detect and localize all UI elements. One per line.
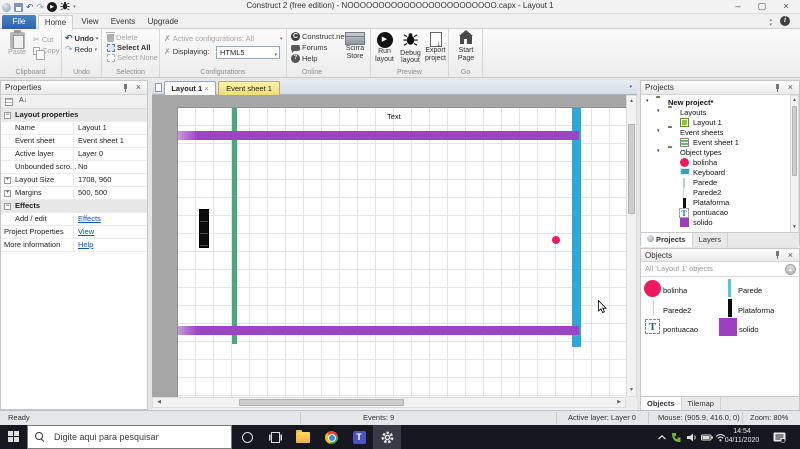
tree-item-event-sheets[interactable]: ▾Event sheets bbox=[641, 128, 799, 138]
volume-button[interactable] bbox=[685, 425, 698, 449]
divider bbox=[556, 412, 557, 424]
chevron-down-icon: ▾ bbox=[274, 50, 277, 61]
page-icon bbox=[155, 83, 162, 92]
group-label: Preview bbox=[371, 69, 448, 76]
property-row[interactable]: Event sheetEvent sheet 1 bbox=[1, 135, 147, 148]
clock-date: 04/11/2020 bbox=[718, 436, 766, 445]
sort-az-icon[interactable]: A↓ bbox=[19, 97, 27, 104]
scroll-thumb[interactable] bbox=[792, 106, 797, 176]
layout-editor: Layout 1 × Event sheet 1 ▾ Text ▲ ▼ ◀ bbox=[152, 80, 637, 410]
window-title: Construct 2 (free edition) - NOOOOOOOOOO… bbox=[0, 1, 800, 10]
phone-icon bbox=[671, 432, 682, 443]
expand-icon[interactable]: + bbox=[4, 177, 11, 184]
pin-icon[interactable] bbox=[122, 84, 129, 92]
property-row[interactable]: +Margins500, 500 bbox=[1, 187, 147, 200]
store-crate-icon bbox=[345, 32, 365, 45]
solid-icon bbox=[680, 218, 689, 227]
group-undo: ↶Undo▾ ↷Redo▾ Undo bbox=[62, 29, 102, 77]
cortana-button[interactable] bbox=[233, 425, 261, 449]
solido-thumbnail[interactable] bbox=[719, 318, 737, 336]
construct-icon: C bbox=[291, 32, 300, 41]
tree-item-solido[interactable]: solido bbox=[641, 218, 799, 228]
minimize-button[interactable]: – bbox=[726, 0, 750, 13]
trash-icon bbox=[107, 34, 114, 42]
bug-icon bbox=[403, 32, 418, 50]
tab-list-dropdown-icon[interactable]: ▾ bbox=[629, 84, 632, 90]
text-object[interactable]: Text bbox=[387, 112, 401, 121]
tree-item-parede2[interactable]: Parede2 bbox=[641, 188, 799, 198]
tree-item-keyboard[interactable]: Keyboard bbox=[641, 168, 799, 178]
undo-icon: ↶ bbox=[65, 34, 73, 43]
parede-thumbnail[interactable] bbox=[728, 279, 731, 297]
objects-filter-bar[interactable]: All 'Layout 1' objects ▲ bbox=[641, 262, 799, 277]
construct-net-link[interactable]: CConstruct.net bbox=[291, 32, 347, 41]
maximize-button[interactable]: ▢ bbox=[750, 0, 774, 13]
export-icon bbox=[430, 32, 442, 47]
battery-button[interactable] bbox=[700, 425, 714, 449]
tab-home[interactable]: Home bbox=[38, 15, 73, 30]
export-project-button[interactable]: Export project bbox=[423, 32, 448, 62]
parede-object[interactable] bbox=[232, 108, 237, 344]
scroll-up-icon[interactable]: ▲ bbox=[627, 97, 636, 106]
taskbar-search-input[interactable] bbox=[27, 425, 232, 449]
projects-header: Projects × bbox=[641, 81, 799, 95]
objects-grid: bolinha Parede Parede2 Plataforma T pont… bbox=[641, 277, 799, 397]
group-preview: ▶ Run layout Debug layout Export project… bbox=[371, 29, 449, 77]
wall-icon bbox=[683, 178, 685, 188]
tab-upgrade[interactable]: Upgrade bbox=[141, 15, 185, 29]
projects-tree: ▾New project* ▾Layouts Layout 1 ▾Event s… bbox=[641, 95, 799, 233]
pontuacao-thumbnail[interactable]: T bbox=[645, 319, 660, 334]
group-go: Start Page Go bbox=[449, 29, 483, 77]
displaying-combobox[interactable]: HTML5▾ bbox=[216, 46, 280, 59]
close-tab-icon[interactable]: × bbox=[204, 84, 208, 93]
cut-icon: ✂ bbox=[33, 36, 40, 44]
keyboard-icon bbox=[680, 168, 690, 175]
group-label: Configurations bbox=[160, 69, 286, 76]
group-clipboard: Paste ✂Cut Copy Clipboard bbox=[0, 29, 62, 77]
parede-object-right[interactable] bbox=[572, 108, 581, 347]
group-label: Undo bbox=[62, 69, 101, 76]
tree-item-event-sheet-1[interactable]: Event sheet 1 bbox=[641, 138, 799, 148]
search-icon bbox=[35, 432, 45, 442]
text-icon: T bbox=[679, 208, 689, 218]
group-configurations: ✗Active configurations: All ▾ ✗Displayin… bbox=[160, 29, 287, 77]
tab-event-sheet-1[interactable]: Event sheet 1 bbox=[218, 81, 280, 95]
horizontal-scrollbar[interactable]: ◀ ▶ bbox=[152, 397, 626, 408]
tree-item-bolinha[interactable]: bolinha bbox=[641, 158, 799, 168]
properties-toolbar: A↓ bbox=[1, 95, 147, 109]
property-row[interactable]: Unbounded scro...No bbox=[1, 161, 147, 174]
scroll-down-icon[interactable]: ▼ bbox=[791, 223, 798, 232]
filter-up-icon[interactable]: ▲ bbox=[785, 264, 796, 275]
tree-item-plataforma[interactable]: Plataforma bbox=[641, 198, 799, 208]
scrollbar-corner bbox=[626, 397, 637, 408]
copy-button[interactable]: Copy bbox=[33, 46, 60, 55]
expand-icon[interactable]: + bbox=[4, 190, 11, 197]
bolinha-object[interactable] bbox=[552, 236, 560, 244]
chrome-icon bbox=[325, 431, 338, 444]
plataforma-thumbnail[interactable] bbox=[728, 299, 732, 317]
ribbon-tab-bar: File Home View Events Upgrade ▴▾ i bbox=[0, 14, 800, 29]
tree-item-layout-1[interactable]: Layout 1 bbox=[641, 118, 799, 128]
help-link[interactable]: Help bbox=[73, 240, 145, 252]
active-configurations-dropdown[interactable]: ✗Active configurations: All bbox=[164, 34, 254, 43]
filter-text: All 'Layout 1' objects bbox=[645, 264, 713, 273]
tree-item-pontuacao[interactable]: Tpontuacao bbox=[641, 208, 799, 218]
panel-title: Objects bbox=[645, 251, 672, 260]
properties-panel: Properties × A↓ −Layout properties NameL… bbox=[0, 80, 148, 410]
layout-viewport[interactable]: Text bbox=[152, 95, 626, 397]
scroll-right-icon[interactable]: ▶ bbox=[615, 398, 623, 407]
group-label: Clipboard bbox=[0, 69, 61, 76]
group-label: Online bbox=[287, 69, 337, 76]
group-selection: Delete Select All Select None Selection bbox=[102, 29, 160, 77]
collapse-icon[interactable]: − bbox=[4, 112, 11, 119]
gear-icon bbox=[380, 430, 395, 445]
notification-icon bbox=[773, 432, 786, 443]
properties-grid: −Layout properties NameLayout 1 Event sh… bbox=[1, 109, 147, 409]
windows-logo-icon bbox=[8, 431, 20, 443]
close-icon[interactable]: × bbox=[788, 81, 793, 94]
task-view-icon bbox=[269, 432, 282, 443]
globe-icon bbox=[647, 235, 654, 242]
tree-item-new-project[interactable]: ▾New project* bbox=[641, 98, 799, 108]
vertical-scrollbar[interactable]: ▲ ▼ bbox=[626, 95, 637, 397]
paste-icon bbox=[10, 32, 25, 49]
redo-icon: ↷ bbox=[65, 45, 73, 54]
status-bar: Ready Events: 9 Active layer: Layer 0 Mo… bbox=[0, 410, 800, 425]
view-link[interactable]: View bbox=[73, 227, 145, 239]
mouse-cursor bbox=[598, 300, 607, 316]
categorized-view-icon[interactable] bbox=[5, 98, 13, 106]
scroll-left-icon[interactable]: ◀ bbox=[155, 398, 163, 407]
undo-button[interactable]: ↶Undo▾ bbox=[65, 34, 98, 43]
cortana-icon bbox=[242, 432, 253, 443]
property-row[interactable]: Add / editEffects bbox=[1, 213, 147, 226]
forums-icon bbox=[291, 45, 300, 51]
properties-header: Properties × bbox=[1, 81, 147, 95]
notifications-button[interactable] bbox=[770, 425, 788, 449]
scroll-down-icon[interactable]: ▼ bbox=[627, 386, 636, 395]
config-icon: ✗ bbox=[164, 35, 171, 43]
panel-title: Projects bbox=[645, 83, 674, 92]
divider bbox=[648, 412, 649, 424]
help-link[interactable]: ?Help bbox=[291, 54, 317, 63]
status-active-layer: Active layer: Layer 0 bbox=[568, 413, 636, 422]
ribbon-collapse-icon[interactable]: ▴▾ bbox=[769, 18, 772, 28]
clock[interactable]: 14:54 04/11/2020 bbox=[718, 427, 766, 445]
divider bbox=[742, 412, 743, 424]
scirra-store-button[interactable]: Scirra Store bbox=[340, 32, 370, 60]
clock-time: 14:54 bbox=[718, 427, 766, 436]
property-row[interactable]: NameLayout 1 bbox=[1, 122, 147, 135]
tab-file[interactable]: File bbox=[2, 15, 36, 29]
battery-icon bbox=[701, 434, 713, 441]
select-all-button[interactable]: Select All bbox=[107, 43, 151, 52]
collapse-icon[interactable]: − bbox=[4, 203, 11, 210]
layout-area[interactable]: Text bbox=[177, 107, 626, 397]
editor-tab-bar: Layout 1 × Event sheet 1 ▾ bbox=[152, 80, 637, 95]
status-zoom: Zoom: 80% bbox=[750, 413, 788, 422]
property-row[interactable]: Project PropertiesView bbox=[1, 226, 147, 239]
section-row[interactable]: −Layout properties bbox=[1, 109, 147, 122]
pin-icon[interactable] bbox=[774, 251, 781, 259]
wall2-icon bbox=[683, 188, 684, 198]
config-icon: ✗ bbox=[164, 48, 171, 56]
chevron-up-icon bbox=[658, 435, 666, 440]
delete-button[interactable]: Delete bbox=[107, 33, 138, 42]
objects-panel-tabs: Objects Tilemap bbox=[641, 396, 799, 410]
screen: ↶ ↷ ▶ ▾ Construct 2 (free edition) - NOO… bbox=[0, 0, 800, 449]
tree-item-parede[interactable]: Parede bbox=[641, 178, 799, 188]
event-sheet-icon bbox=[680, 138, 689, 147]
displaying-label: ✗Displaying: bbox=[164, 47, 209, 56]
tab-layers[interactable]: Layers bbox=[693, 233, 729, 247]
tree-item-object-types[interactable]: ▾Object types bbox=[641, 148, 799, 158]
group-label: Selection bbox=[102, 69, 159, 76]
speaker-icon bbox=[687, 433, 697, 442]
select-none-button[interactable]: Select None bbox=[107, 53, 158, 62]
settings-button[interactable] bbox=[373, 425, 401, 449]
property-row[interactable]: +Layout Size1708, 960 bbox=[1, 174, 147, 187]
pin-icon[interactable] bbox=[774, 84, 781, 92]
teams-button[interactable]: T bbox=[345, 425, 373, 449]
tree-item-layouts[interactable]: ▾Layouts bbox=[641, 108, 799, 118]
plataforma-object[interactable] bbox=[199, 209, 209, 248]
layout-icon bbox=[680, 118, 689, 127]
start-page-button[interactable]: Start Page bbox=[451, 29, 481, 62]
projects-panel-tabs: Projects Layers bbox=[641, 232, 799, 246]
ball-icon bbox=[680, 158, 689, 167]
tab-view[interactable]: View bbox=[75, 15, 105, 29]
property-row[interactable]: Active layerLayer 0 bbox=[1, 148, 147, 161]
tab-events[interactable]: Events bbox=[106, 15, 140, 29]
solido-object-top[interactable] bbox=[178, 131, 579, 140]
objects-header: Objects × bbox=[641, 249, 799, 262]
horizontal-scroll-thumb[interactable] bbox=[239, 399, 404, 406]
status-events: Events: 9 bbox=[363, 413, 394, 422]
run-layout-button[interactable]: ▶ Run layout bbox=[372, 32, 397, 63]
redo-button[interactable]: ↷Redo▾ bbox=[65, 45, 97, 54]
start-button[interactable] bbox=[0, 425, 27, 449]
status-mouse: Mouse: (905.9, 416.0, 0) bbox=[658, 413, 740, 422]
group-online: CConstruct.net Forums ?Help Scirra Store… bbox=[287, 29, 371, 77]
tray-green-app-button[interactable] bbox=[670, 425, 683, 449]
about-icon[interactable]: i bbox=[780, 16, 790, 26]
panel-title: Properties bbox=[5, 83, 41, 92]
title-bar: ↶ ↷ ▶ ▾ Construct 2 (free edition) - NOO… bbox=[0, 0, 800, 14]
group-label: Go bbox=[449, 69, 482, 76]
home-icon bbox=[460, 36, 472, 44]
task-view-button[interactable] bbox=[261, 425, 289, 449]
projects-scrollbar[interactable]: ▲ ▼ bbox=[790, 95, 799, 233]
close-icon[interactable]: × bbox=[788, 249, 793, 262]
objects-panel: Objects × All 'Layout 1' objects ▲ bolin… bbox=[640, 248, 800, 410]
forums-link[interactable]: Forums bbox=[291, 43, 327, 52]
close-button[interactable]: × bbox=[774, 0, 798, 13]
help-icon: ? bbox=[291, 54, 300, 63]
divider bbox=[300, 412, 301, 424]
folder-icon bbox=[296, 432, 310, 443]
paste-button[interactable]: Paste bbox=[4, 32, 30, 57]
play-icon: ▶ bbox=[377, 32, 393, 48]
tab-projects[interactable]: Projects bbox=[641, 233, 693, 247]
vertical-scroll-thumb[interactable] bbox=[628, 124, 635, 214]
tab-objects[interactable]: Objects bbox=[641, 397, 682, 411]
tab-tilemap[interactable]: Tilemap bbox=[682, 397, 721, 411]
taskbar: T 14:54 04/11/2020 bbox=[0, 425, 800, 449]
projects-panel: Projects × ▾New project* ▾Layouts Layout… bbox=[640, 80, 800, 246]
bolinha-thumbnail[interactable] bbox=[644, 280, 661, 297]
file-explorer-button[interactable] bbox=[289, 425, 317, 449]
solido-object-bottom[interactable] bbox=[178, 326, 579, 335]
window-controls: – ▢ × bbox=[726, 0, 798, 13]
scroll-up-icon[interactable]: ▲ bbox=[791, 96, 798, 105]
cut-button[interactable]: ✂Cut bbox=[33, 35, 53, 44]
status-ready: Ready bbox=[8, 413, 30, 422]
copy-icon bbox=[33, 47, 40, 55]
effects-link[interactable]: Effects bbox=[73, 214, 145, 226]
tab-layout-1[interactable]: Layout 1 × bbox=[164, 81, 216, 95]
chevron-down-icon[interactable]: ▾ bbox=[280, 36, 283, 42]
close-icon[interactable]: × bbox=[136, 81, 141, 94]
platform-icon bbox=[683, 198, 686, 208]
property-row[interactable]: More informationHelp bbox=[1, 239, 147, 252]
ribbon: Paste ✂Cut Copy Clipboard ↶Undo▾ ↷Redo▾ … bbox=[0, 29, 800, 78]
select-none-icon bbox=[107, 54, 115, 62]
chrome-button[interactable] bbox=[317, 425, 345, 449]
tray-expand-button[interactable] bbox=[656, 425, 668, 449]
debug-layout-button[interactable]: Debug layout bbox=[398, 32, 423, 65]
select-all-icon bbox=[107, 44, 115, 52]
parede2-thumbnail[interactable] bbox=[653, 300, 654, 316]
teams-icon: T bbox=[353, 431, 366, 444]
section-row[interactable]: −Effects bbox=[1, 200, 147, 213]
